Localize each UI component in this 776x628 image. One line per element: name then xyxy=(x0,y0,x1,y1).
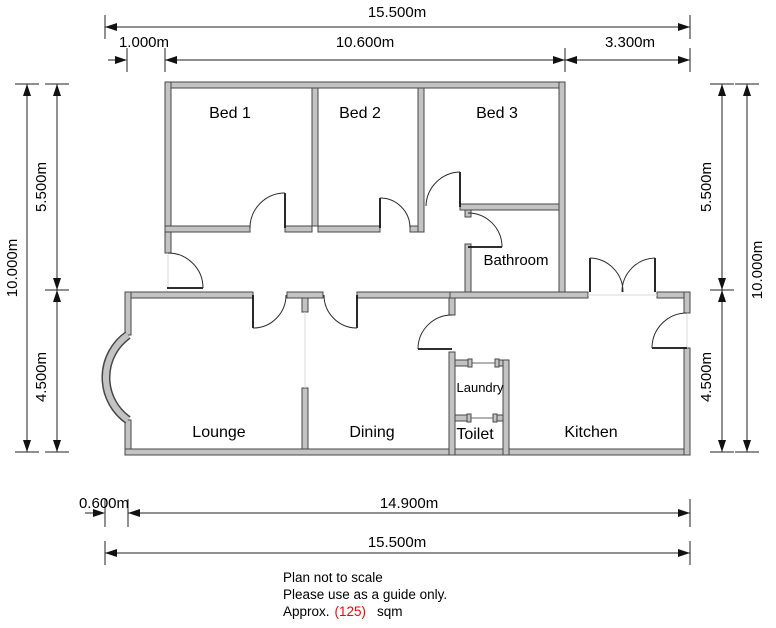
room-label-bed1: Bed 1 xyxy=(209,105,251,122)
wall-east-lower-a xyxy=(684,292,690,313)
wall-lounge-dining xyxy=(302,388,308,455)
wall-east-upper xyxy=(559,82,565,298)
footer-notes: Plan not to scale Please use as a guide … xyxy=(283,570,447,619)
dim-left-lower: 4.500m xyxy=(33,352,50,402)
wall-laundry-north-a xyxy=(455,360,469,366)
dim-left-upper: 5.500m xyxy=(33,162,50,212)
dim-top-mid: 10.600m xyxy=(336,34,394,51)
wall-south xyxy=(125,449,690,455)
doors xyxy=(167,172,687,349)
bathroom-door xyxy=(468,213,502,247)
wall-bedrooms-south-b xyxy=(285,226,312,232)
note-line3: Approx.(125)sqm xyxy=(283,604,403,619)
dim-top-total: 15.500m xyxy=(368,4,426,21)
wall-bathroom-west xyxy=(465,244,471,298)
wall-hall-south-b xyxy=(357,292,450,298)
dim-top-left-offset: 1.000m xyxy=(119,34,169,51)
dim-right-lower: 4.500m xyxy=(698,352,715,402)
dim-bottom-offset: 0.600m xyxy=(79,495,129,512)
dimension-lines xyxy=(15,15,759,565)
openings xyxy=(168,253,687,418)
jamb-toilet-right xyxy=(493,414,497,422)
dim-bottom-total: 15.500m xyxy=(368,534,426,551)
front-door xyxy=(167,253,203,288)
room-label-bathroom: Bathroom xyxy=(483,252,548,269)
bed1-door xyxy=(250,193,285,228)
note-line1: Plan not to scale xyxy=(283,570,383,585)
wall-hall-south-a xyxy=(125,292,253,298)
bed3-door xyxy=(426,172,460,207)
wall-hall-south-c xyxy=(450,292,588,298)
wall-laundry-east xyxy=(503,360,509,455)
wall-bedrooms-south-a xyxy=(165,226,250,232)
wall-top xyxy=(165,82,565,88)
wall-hall-south-stub xyxy=(287,292,323,298)
lounge-door xyxy=(253,295,286,328)
wall-bedrooms-south-c xyxy=(318,226,380,232)
jamb-toilet-left xyxy=(467,414,471,422)
wall-lounge-dining-stub xyxy=(302,298,308,312)
room-label-bed3: Bed 3 xyxy=(476,105,518,122)
jamb-laundry-left xyxy=(468,359,472,367)
dim-right-upper: 5.500m xyxy=(698,162,715,212)
wall-bed3-south xyxy=(460,204,559,210)
wall-toilet-divider-a xyxy=(455,415,468,421)
note-approx-suffix: sqm xyxy=(377,604,403,619)
room-label-bed2: Bed 2 xyxy=(339,105,381,122)
wall-laundry-west xyxy=(449,352,455,455)
wall-bed1-bed2-divider xyxy=(312,88,318,226)
wall-west-lower-a xyxy=(125,292,131,335)
room-labels: Bed 1 Bed 2 Bed 3 Bathroom Lounge Dining… xyxy=(192,105,617,443)
back-door xyxy=(652,313,687,348)
floor-plan-page: 15.500m 1.000m 10.600m 3.300m 10.000m 5.… xyxy=(0,0,776,628)
room-label-lounge: Lounge xyxy=(192,424,245,441)
floor-plan-drawing: 15.500m 1.000m 10.600m 3.300m 10.000m 5.… xyxy=(0,0,776,628)
dim-bottom-main: 14.900m xyxy=(380,495,438,512)
dining-door xyxy=(324,295,357,328)
room-label-laundry: Laundry xyxy=(457,380,504,395)
note-line2: Please use as a guide only. xyxy=(283,587,447,602)
note-approx-value: (125) xyxy=(335,604,367,619)
kitchen-passage-door xyxy=(418,315,452,349)
wall-east-lower-b xyxy=(684,348,690,455)
wall-passage-stub xyxy=(449,298,455,315)
room-label-toilet: Toilet xyxy=(456,426,494,443)
dim-right-outer: 10.000m xyxy=(749,241,766,299)
jamb-laundry-right xyxy=(495,359,499,367)
bed2-door xyxy=(380,198,410,228)
dim-top-right: 3.300m xyxy=(605,34,655,51)
room-label-dining: Dining xyxy=(349,424,394,441)
wall-bed2-bed3-divider xyxy=(418,88,424,232)
french-doors xyxy=(590,258,655,292)
note-approx-prefix: Approx. xyxy=(283,604,330,619)
dim-left-outer: 10.000m xyxy=(4,239,21,297)
room-label-kitchen: Kitchen xyxy=(564,424,617,441)
walls xyxy=(106,82,690,455)
